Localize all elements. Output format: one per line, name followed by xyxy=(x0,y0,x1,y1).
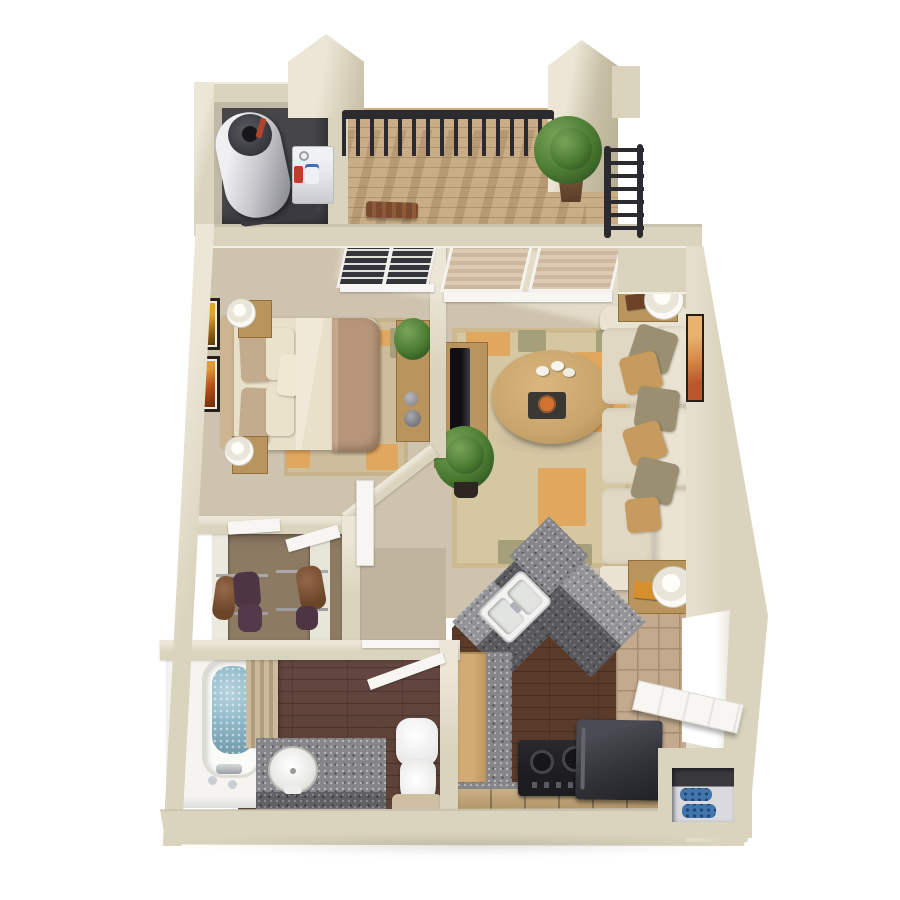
kitchen-cabinet-left-run xyxy=(456,652,488,788)
balcony-railing-top-bar xyxy=(342,110,554,119)
bedroom-door-leaf xyxy=(356,480,374,566)
toilet-tank xyxy=(396,718,438,766)
sink-drain xyxy=(290,768,296,774)
roof-pillar-left xyxy=(288,34,364,118)
detergent-bottle-red xyxy=(294,166,303,183)
balcony-bench xyxy=(366,201,419,219)
living-wall-picture xyxy=(686,314,704,402)
dresser-plant xyxy=(394,318,432,360)
sofa-pillow-tan xyxy=(624,496,661,533)
cabinet-left-countertop xyxy=(486,652,512,788)
floorplan-render xyxy=(0,0,900,900)
washer-control-dial xyxy=(299,151,309,161)
hanging-clothes-plum xyxy=(296,606,318,630)
balcony-right-railing-bar xyxy=(604,146,611,238)
detergent-jug-white xyxy=(305,164,319,184)
hanging-clothes-plum xyxy=(238,604,262,632)
fridge-handle xyxy=(580,727,585,789)
rug-patch-olive xyxy=(518,330,546,352)
shrub-plant-top xyxy=(446,436,484,474)
rug-patch-orange xyxy=(538,468,586,526)
tub-faucet xyxy=(216,764,242,774)
refrigerator xyxy=(575,719,662,800)
utility-wall-left xyxy=(194,82,214,236)
shrub-pot xyxy=(454,482,478,498)
dresser-vase xyxy=(404,392,418,406)
picture-art xyxy=(688,316,702,400)
roof-pillar-right-wing xyxy=(612,66,640,118)
bathroom-door-threshold xyxy=(362,640,440,648)
slat-screen xyxy=(246,654,278,748)
sink-faucet xyxy=(284,786,302,794)
building-ground-shadow xyxy=(180,836,740,854)
dresser-vase xyxy=(404,410,421,427)
balcony-plant-top xyxy=(550,128,592,170)
blue-shoe xyxy=(680,788,712,801)
table-lamp-bottom xyxy=(224,436,254,466)
rug-patch-orange xyxy=(286,450,310,468)
decor-egg xyxy=(563,368,575,377)
sliding-door-sill xyxy=(444,292,612,302)
vanity-front-face xyxy=(256,792,386,808)
table-lamp-top xyxy=(226,298,256,328)
balcony-right-railing-outer-bar xyxy=(637,144,643,238)
tub-handle xyxy=(208,776,217,785)
wall-bathroom-kitchen xyxy=(440,640,458,824)
stove-burner xyxy=(530,750,554,774)
decor-egg xyxy=(551,361,564,371)
bed-blanket xyxy=(332,318,380,452)
bedroom-window-sill xyxy=(340,284,434,292)
blue-shoe xyxy=(682,804,716,818)
decor-egg xyxy=(536,366,549,376)
decor-tray xyxy=(528,392,566,419)
tub-handle xyxy=(228,780,237,789)
